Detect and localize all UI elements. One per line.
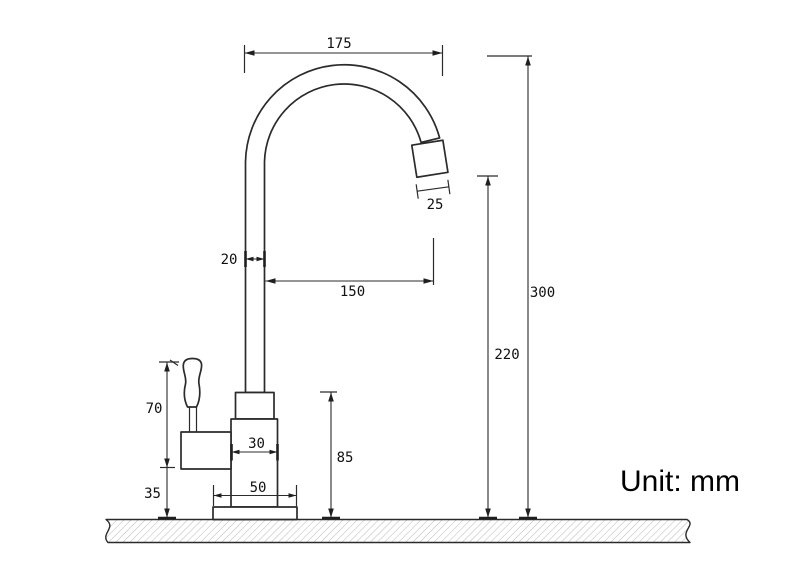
dim-body-height: 85	[320, 392, 353, 518]
dim-300-arrow-bottom	[525, 509, 531, 518]
diagram-svg: 175 25 20 150 300	[0, 0, 790, 573]
dim-total-height: 300	[487, 56, 555, 518]
dim-150-arrow-right	[424, 278, 434, 283]
dim-35-arrow-bottom	[164, 509, 170, 518]
valve-body	[181, 432, 231, 469]
dim-70-top-stub	[170, 360, 178, 366]
dim-spout-reach: 150	[266, 238, 434, 300]
unit-note: Unit: mm	[620, 465, 740, 498]
dim-20-label: 20	[221, 252, 238, 268]
dim-85-arrow-top	[328, 393, 334, 402]
dim-aerator-size: 25	[416, 180, 450, 213]
dim-150-label: 150	[340, 284, 365, 300]
dim-70-arrow-top	[164, 363, 170, 372]
gooseneck-spout	[246, 65, 440, 393]
dim-50-arrow-left	[214, 493, 222, 498]
dim-50-label: 50	[250, 480, 267, 496]
body-collar	[236, 393, 275, 420]
dim-outlet-height: 220	[477, 176, 520, 518]
faucet-dimension-diagram: 175 25 20 150 300	[0, 0, 790, 573]
countertop	[106, 520, 690, 543]
dim-25-line	[417, 187, 449, 191]
dim-220-arrow-bottom	[485, 509, 491, 518]
dim-175-arrow-left	[245, 50, 255, 55]
dim-handle-and-base: 70 35	[144, 360, 179, 518]
dim-220-label: 220	[494, 347, 519, 363]
dim-70-arrow-bottom	[164, 459, 170, 468]
dim-300-arrow-top	[525, 57, 531, 66]
base-plate	[213, 507, 297, 520]
dim-30-label: 30	[248, 436, 265, 452]
dim-85-arrow-bottom	[328, 509, 334, 518]
dim-85-label: 85	[337, 450, 354, 466]
dim-175-arrow-right	[433, 50, 443, 55]
aerator-tip	[412, 140, 448, 177]
dim-25-label: 25	[427, 197, 444, 213]
dim-300-label: 300	[530, 285, 555, 301]
dim-50-arrow-right	[289, 493, 297, 498]
dim-175-label: 175	[326, 36, 351, 52]
dim-70-label: 70	[146, 401, 163, 417]
faucet-outline	[181, 65, 448, 520]
dim-220-arrow-top	[485, 177, 491, 186]
dim-35-label: 35	[144, 486, 161, 502]
dim-150-arrow-left	[266, 278, 276, 283]
handle-grip	[183, 359, 201, 408]
